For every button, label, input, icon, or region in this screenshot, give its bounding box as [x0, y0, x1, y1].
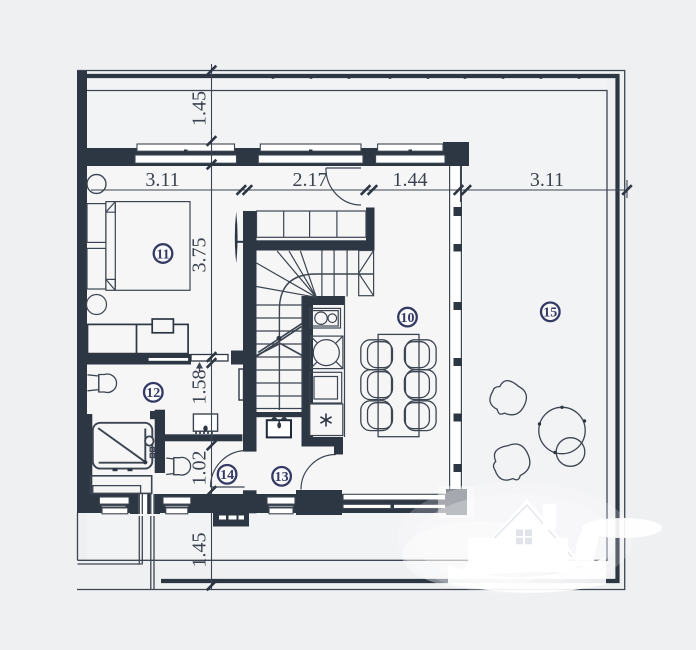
svg-text:1.45: 1.45 [189, 91, 211, 126]
svg-text:1.44: 1.44 [393, 169, 428, 191]
svg-text:3.11: 3.11 [145, 169, 179, 191]
svg-text:3.11: 3.11 [530, 169, 564, 191]
svg-text:15: 15 [543, 306, 557, 321]
svg-text:2.17: 2.17 [293, 169, 328, 191]
svg-text:11: 11 [156, 247, 169, 262]
svg-text:1.02: 1.02 [189, 451, 211, 486]
svg-text:13: 13 [275, 470, 289, 485]
svg-text:12: 12 [146, 386, 160, 401]
svg-text:14: 14 [220, 468, 234, 483]
svg-text:1.45: 1.45 [189, 533, 211, 568]
svg-text:10: 10 [401, 311, 415, 326]
svg-text:1.58: 1.58 [189, 370, 211, 405]
svg-text:3.75: 3.75 [189, 238, 211, 273]
